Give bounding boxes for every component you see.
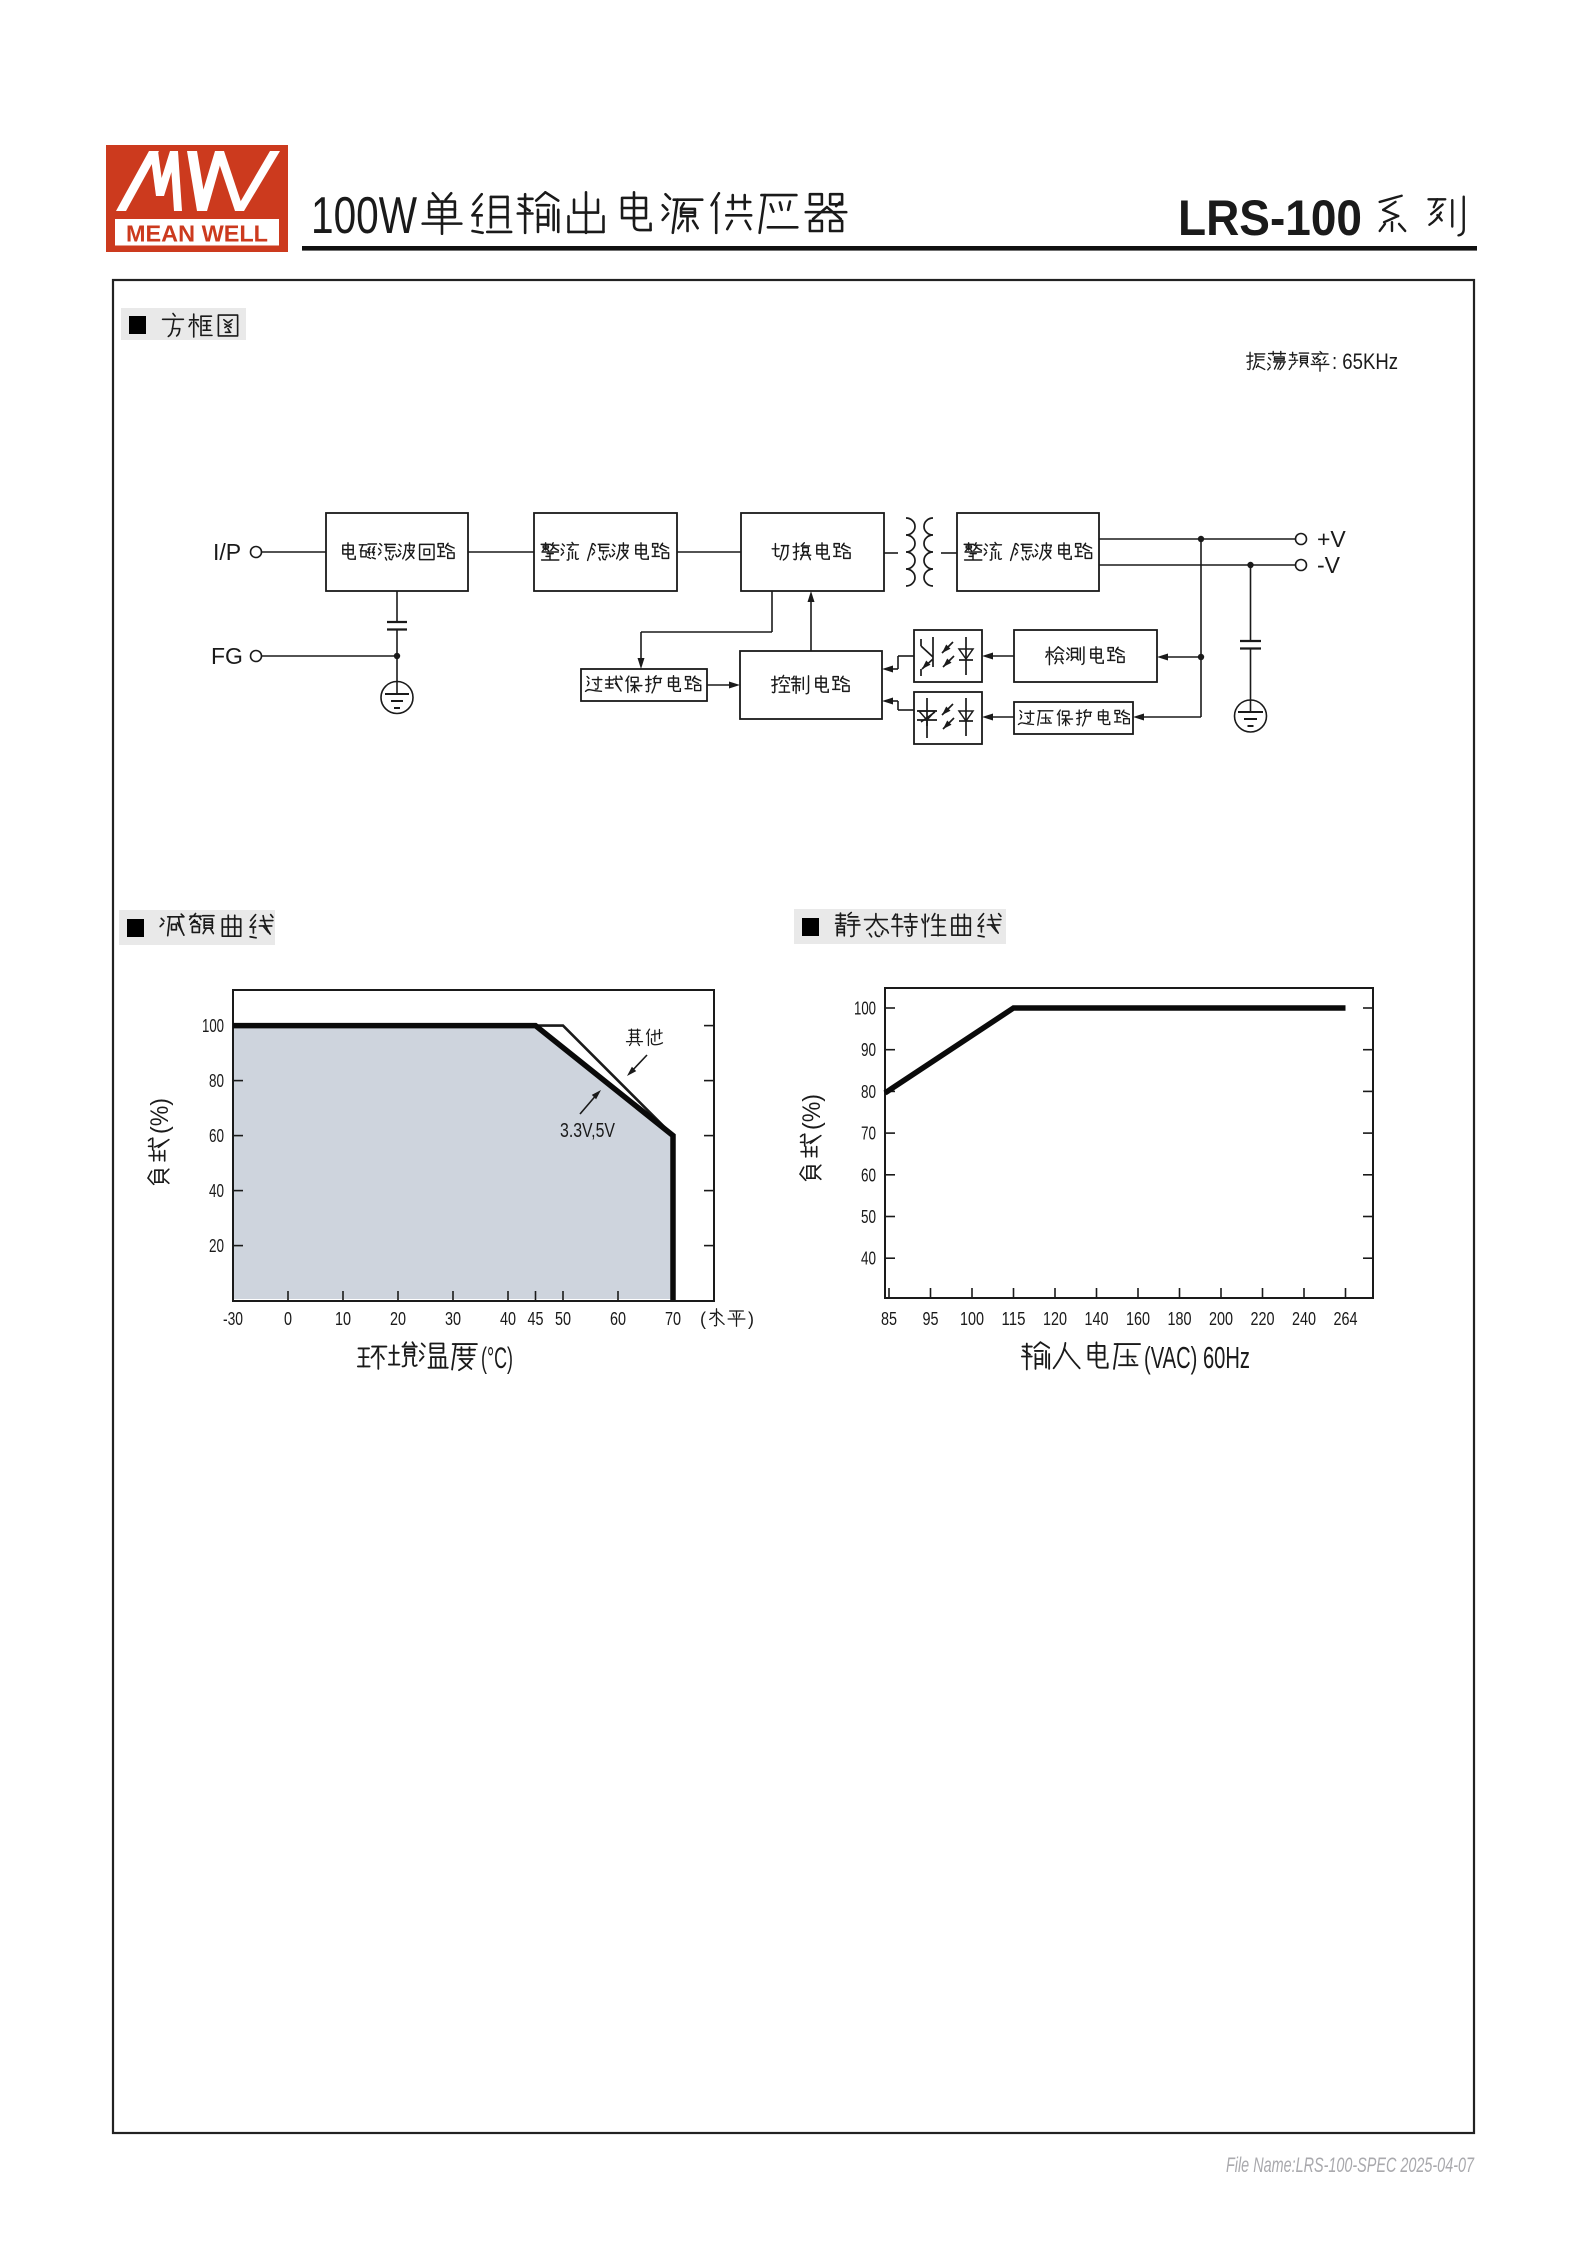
svg-text:80: 80	[861, 1082, 876, 1102]
svg-text:220: 220	[1251, 1309, 1275, 1329]
svg-text:3.3V,5V: 3.3V,5V	[560, 1120, 616, 1142]
svg-text:80: 80	[209, 1071, 224, 1091]
svg-text:(°C): (°C)	[481, 1342, 513, 1375]
svg-text:(%): (%)	[798, 1094, 826, 1130]
svg-text:100: 100	[854, 999, 876, 1019]
svg-text:(VAC) 60Hz: (VAC) 60Hz	[1144, 1340, 1250, 1375]
svg-text:: 65KHz: : 65KHz	[1332, 349, 1398, 374]
svg-text:85: 85	[881, 1309, 897, 1329]
svg-text:60: 60	[209, 1126, 224, 1146]
svg-text:264: 264	[1334, 1309, 1358, 1329]
svg-text:45: 45	[528, 1309, 544, 1329]
svg-text:(: (	[700, 1309, 706, 1329]
svg-text:115: 115	[1002, 1309, 1026, 1329]
svg-text:100: 100	[960, 1309, 984, 1329]
svg-text:10: 10	[335, 1309, 351, 1329]
svg-text:30: 30	[445, 1309, 461, 1329]
svg-text:40: 40	[500, 1309, 516, 1329]
svg-text:MEAN WELL: MEAN WELL	[126, 221, 268, 247]
svg-text:+V: +V	[1317, 526, 1346, 552]
svg-text:LRS-100: LRS-100	[1178, 190, 1362, 246]
svg-text:180: 180	[1168, 1309, 1192, 1329]
svg-text:I/P: I/P	[213, 539, 241, 565]
svg-text:100: 100	[202, 1016, 224, 1036]
svg-text:FG: FG	[211, 643, 243, 669]
svg-text:-V: -V	[1317, 552, 1341, 578]
svg-text:0: 0	[284, 1309, 292, 1329]
svg-text:70: 70	[861, 1124, 876, 1144]
svg-text:240: 240	[1292, 1309, 1316, 1329]
svg-text:60: 60	[610, 1309, 626, 1329]
svg-text:20: 20	[209, 1236, 224, 1256]
svg-text:140: 140	[1085, 1309, 1109, 1329]
svg-text:95: 95	[923, 1309, 939, 1329]
svg-text:): )	[748, 1309, 754, 1329]
svg-text:120: 120	[1043, 1309, 1067, 1329]
svg-text:200: 200	[1209, 1309, 1233, 1329]
svg-text:50: 50	[861, 1207, 876, 1227]
svg-text:160: 160	[1126, 1309, 1150, 1329]
svg-text:60: 60	[861, 1165, 876, 1185]
svg-text:90: 90	[861, 1040, 876, 1060]
svg-text:100W: 100W	[311, 187, 417, 245]
svg-text:40: 40	[209, 1181, 224, 1201]
svg-text:(%): (%)	[146, 1098, 174, 1134]
svg-text:File Name:LRS-100-SPEC 2025-04: File Name:LRS-100-SPEC 2025-04-07	[1226, 2154, 1475, 2177]
svg-text:50: 50	[555, 1309, 571, 1329]
svg-text:20: 20	[390, 1309, 406, 1329]
svg-text:40: 40	[861, 1249, 876, 1269]
svg-text:70: 70	[665, 1309, 681, 1329]
svg-text:-30: -30	[223, 1309, 243, 1329]
